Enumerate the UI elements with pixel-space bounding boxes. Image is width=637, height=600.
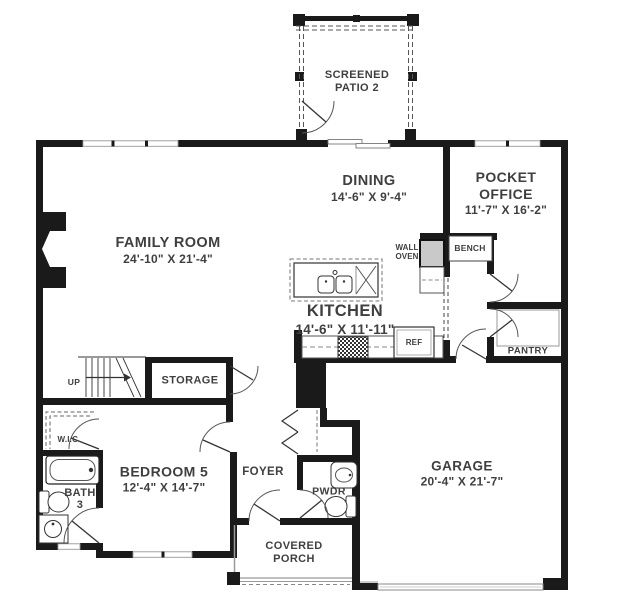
bath3-door (64, 508, 99, 543)
annotation-wall-oven: WALL OVEN (395, 243, 418, 261)
door-swings (64, 274, 518, 543)
annotation-up: UP (68, 377, 81, 387)
room-label-covered-porch: COVERED PORCH (265, 540, 322, 566)
room-label-pocket-office: POCKET OFFICE 11'-7" X 16'-2" (465, 169, 547, 217)
room-label-pantry: PANTRY (508, 345, 548, 356)
patio-post (353, 15, 360, 22)
stairs (78, 357, 146, 397)
room-label-bedroom5: BEDROOM 5 12'-4" X 14'-7" (120, 463, 208, 494)
kitchen-hall-opening (444, 278, 448, 340)
island-sink-icon (336, 276, 352, 293)
patio-post (293, 14, 305, 26)
room-label-kitchen: KITCHEN 14'-6" X 11'-11" (296, 302, 395, 338)
pocket-office-door (490, 274, 518, 302)
annotation-ref: REF (406, 338, 423, 348)
garage-entry-door (456, 329, 486, 359)
island-sink-icon (318, 276, 334, 293)
room-label-wic: W.I.C. (58, 435, 81, 445)
bedroom5-door (200, 422, 230, 452)
room-label-garage: GARAGE 20'-4" X 21'-7" (421, 459, 504, 490)
annotation-bench: BENCH (454, 243, 485, 253)
patio-screen-door (302, 101, 334, 133)
coat-closet-bifold-doors (282, 410, 317, 454)
patio-post (296, 129, 307, 140)
family-room-window (83, 141, 178, 147)
fireplace (36, 212, 66, 288)
room-label-pwdr: PWDR (312, 486, 346, 499)
storage-door (230, 366, 258, 394)
room-label-screened-patio: SCREENED PATIO 2 (325, 69, 389, 95)
room-label-bath3: BATH 3 (64, 487, 95, 511)
patio-post (407, 14, 419, 26)
porch-post (227, 572, 240, 585)
wall-oven-icon (420, 240, 444, 267)
patio-post (405, 129, 416, 140)
pantry-shelves (497, 310, 559, 346)
sliding-door (356, 144, 390, 149)
room-label-foyer: FOYER (242, 466, 284, 480)
range-icon (338, 337, 368, 358)
bath-window (58, 544, 80, 550)
room-label-dining: DINING 14'-6" X 9'-4" (331, 173, 407, 205)
room-label-storage: STORAGE (162, 374, 219, 387)
floor-plan: SCREENED PATIO 2 FAMILY ROOM 24'-10" X 2… (0, 0, 637, 600)
room-label-family-room: FAMILY ROOM 24'-10" X 21'-4" (115, 235, 220, 267)
front-door (249, 490, 280, 521)
tub-faucet-icon (89, 468, 93, 472)
pantry-door (490, 309, 518, 337)
